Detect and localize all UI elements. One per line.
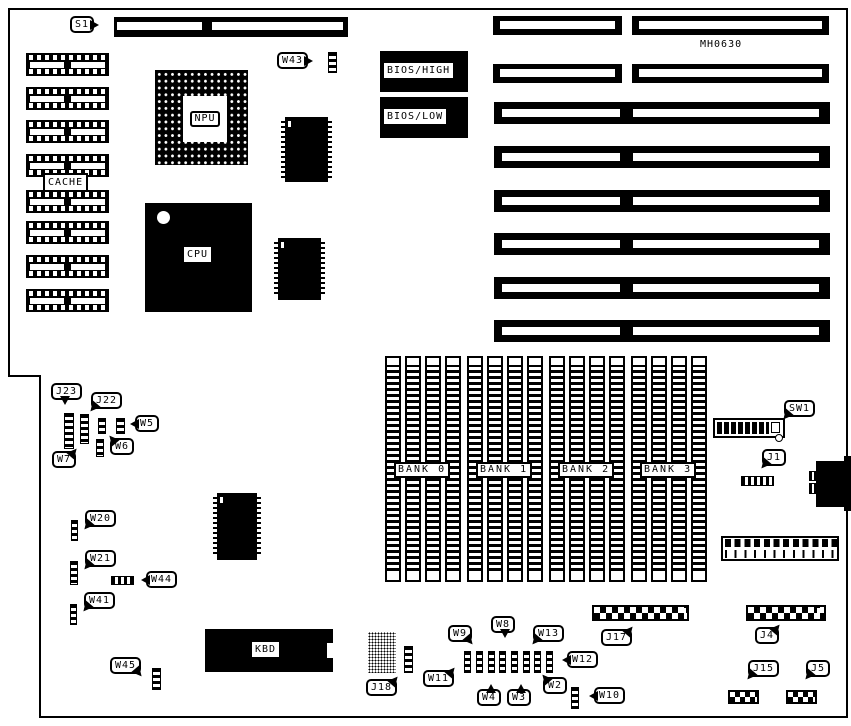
jumper-w21 bbox=[70, 561, 78, 585]
motherboard-diagram: S1 CACHE NPU CPU W43 BIOS/HIGH BIOS/LOW … bbox=[0, 0, 851, 726]
board-edge-left-upper bbox=[8, 8, 10, 377]
switch-cell bbox=[771, 422, 780, 433]
callout-j15: J15 bbox=[748, 660, 779, 677]
callout-w4-text: W4 bbox=[482, 692, 496, 703]
bank3-label: BANK 3 bbox=[640, 462, 696, 478]
pin-header-j15 bbox=[728, 690, 759, 704]
ic-chip-stippled bbox=[368, 632, 396, 673]
callout-w44-text: W44 bbox=[151, 574, 172, 585]
callout-w5: W5 bbox=[135, 415, 159, 432]
callout-w41-text: W41 bbox=[89, 595, 110, 606]
cache-socket-5 bbox=[26, 190, 109, 213]
isa-slot-8 bbox=[494, 320, 830, 342]
callout-w12-text: W12 bbox=[572, 654, 593, 665]
isa-slot-3 bbox=[494, 102, 830, 124]
callout-j18-text: J18 bbox=[371, 682, 392, 693]
callout-w20-text: W20 bbox=[90, 513, 111, 524]
jumper-w4 bbox=[488, 651, 495, 673]
isa-slot-1b bbox=[632, 16, 829, 35]
jumper-j18 bbox=[404, 646, 413, 673]
isa-slot-5 bbox=[494, 190, 830, 212]
cache-socket-3 bbox=[26, 120, 109, 143]
callout-w21: W21 bbox=[85, 550, 116, 567]
arrow-icon bbox=[500, 629, 510, 643]
jumper-w7 bbox=[96, 439, 104, 457]
callout-w2-text: W2 bbox=[548, 680, 562, 691]
cache-socket-7 bbox=[26, 255, 109, 278]
cache-socket-6 bbox=[26, 221, 109, 244]
simm-bank-1: BANK 1 bbox=[467, 356, 543, 582]
callout-w10-text: W10 bbox=[599, 690, 620, 701]
pin-header-j5 bbox=[786, 690, 817, 704]
bank1-label: BANK 1 bbox=[476, 462, 532, 478]
arrow-icon bbox=[486, 679, 496, 693]
simm-bank-0: BANK 0 bbox=[385, 356, 461, 582]
kbd-label: KBD bbox=[252, 642, 279, 657]
jumper-w43 bbox=[328, 52, 337, 73]
cache-socket-1 bbox=[26, 53, 109, 76]
callout-w7: W7 bbox=[52, 451, 76, 468]
npu-socket-center: NPU bbox=[183, 96, 227, 142]
callout-w2: W2 bbox=[543, 677, 567, 694]
jumper-w9 bbox=[476, 651, 483, 673]
isa-slot-2a bbox=[493, 64, 622, 83]
dip-switch-sw1 bbox=[713, 418, 785, 438]
callout-w43-text: W43 bbox=[282, 55, 303, 66]
npu-socket: NPU bbox=[155, 70, 248, 165]
ic-chip-lower bbox=[278, 238, 321, 300]
bank0-label: BANK 0 bbox=[394, 462, 450, 478]
ic-chip-upper bbox=[285, 117, 328, 182]
callout-w10: W10 bbox=[594, 687, 625, 704]
npu-label: NPU bbox=[190, 111, 219, 127]
callout-w11: W11 bbox=[423, 670, 454, 687]
part-number: MH0630 bbox=[700, 39, 742, 50]
cache-socket-2 bbox=[26, 87, 109, 110]
kbd-notch bbox=[327, 643, 335, 658]
arrow-icon bbox=[462, 634, 479, 652]
arrow-icon bbox=[125, 419, 139, 429]
power-connector bbox=[721, 536, 839, 561]
jumper-w13 bbox=[523, 651, 530, 673]
board-edge-step bbox=[8, 375, 41, 377]
callout-sw1: SW1 bbox=[784, 400, 815, 417]
jumper-w8 bbox=[499, 651, 506, 673]
callout-j23: J23 bbox=[51, 383, 82, 400]
isa-slot-1a bbox=[493, 16, 622, 35]
arrow-icon bbox=[90, 20, 104, 30]
jumper-w45 bbox=[152, 668, 161, 690]
isa-slot-4 bbox=[494, 146, 830, 168]
slot-s1 bbox=[114, 17, 348, 37]
callout-j22-text: J22 bbox=[96, 395, 117, 406]
callout-j4: J4 bbox=[755, 627, 779, 644]
arrow-icon bbox=[584, 691, 598, 701]
isa-slot-6 bbox=[494, 233, 830, 255]
ic-chip-middle bbox=[217, 493, 257, 560]
callout-w45: W45 bbox=[110, 657, 141, 674]
callout-w43: W43 bbox=[277, 52, 308, 69]
callout-w8: W8 bbox=[491, 616, 515, 633]
cpu-label: CPU bbox=[184, 247, 211, 262]
callout-j17-text: J17 bbox=[606, 632, 627, 643]
callout-w13: W13 bbox=[533, 625, 564, 642]
jumper-w12 bbox=[546, 651, 553, 673]
callout-w9: W9 bbox=[448, 625, 472, 642]
switch-dot bbox=[775, 434, 783, 442]
arrow-icon bbox=[131, 666, 148, 684]
board-edge-right bbox=[846, 8, 848, 718]
callout-w44: W44 bbox=[146, 571, 177, 588]
bios-high-rom: BIOS/HIGH bbox=[380, 51, 468, 92]
arrow-icon bbox=[557, 655, 571, 665]
header-key-cell bbox=[817, 608, 823, 613]
simm-bank-2: BANK 2 bbox=[549, 356, 625, 582]
callout-j5: J5 bbox=[806, 660, 830, 677]
pin-header-j4 bbox=[746, 605, 826, 621]
callout-w21-text: W21 bbox=[90, 553, 111, 564]
cpu-chip: CPU bbox=[145, 203, 252, 312]
jumper-w10 bbox=[571, 687, 579, 709]
jumper-w41 bbox=[70, 604, 77, 625]
callout-j1: J1 bbox=[762, 449, 786, 466]
callout-w3-text: W3 bbox=[512, 692, 526, 703]
callout-j15-text: J15 bbox=[753, 663, 774, 674]
callout-w12: W12 bbox=[567, 651, 598, 668]
callout-w11-text: W11 bbox=[428, 673, 449, 684]
bios-low-label: BIOS/LOW bbox=[384, 109, 446, 124]
callout-j18: J18 bbox=[366, 679, 397, 696]
jumper-w44 bbox=[111, 576, 134, 585]
board-edge-left-lower bbox=[39, 375, 41, 718]
callout-w20: W20 bbox=[85, 510, 116, 527]
callout-w6: W6 bbox=[110, 438, 134, 455]
arrow-icon bbox=[136, 575, 150, 585]
kbd-rom: KBD bbox=[205, 629, 333, 672]
callout-j17: J17 bbox=[601, 629, 632, 646]
callout-s1-text: S1 bbox=[75, 19, 89, 30]
callout-w6-text: W6 bbox=[115, 441, 129, 452]
callout-w4: W4 bbox=[477, 689, 501, 706]
pin-header-j17 bbox=[592, 605, 689, 621]
callout-w3: W3 bbox=[507, 689, 531, 706]
callout-w5-text: W5 bbox=[140, 418, 154, 429]
jumper-w11 bbox=[464, 651, 471, 673]
jumper-w5 bbox=[116, 418, 125, 434]
simm-bank-3: BANK 3 bbox=[631, 356, 707, 582]
callout-w41: W41 bbox=[84, 592, 115, 609]
bios-high-label: BIOS/HIGH bbox=[384, 63, 453, 78]
din-pin bbox=[809, 471, 817, 481]
arrow-icon bbox=[60, 396, 70, 410]
keyboard-din-tab bbox=[844, 456, 851, 511]
header-key-cell bbox=[680, 608, 686, 613]
isa-slot-2b bbox=[632, 64, 829, 83]
cache-label: CACHE bbox=[43, 173, 88, 192]
callout-j22: J22 bbox=[91, 392, 122, 409]
callout-sw1-text: SW1 bbox=[789, 403, 810, 414]
board-edge-bottom bbox=[39, 716, 848, 718]
isa-slot-7 bbox=[494, 277, 830, 299]
din-pin bbox=[809, 483, 817, 494]
board-edge-top bbox=[8, 8, 848, 10]
bios-low-rom: BIOS/LOW bbox=[380, 97, 468, 138]
callout-s1: S1 bbox=[70, 16, 94, 33]
bank2-label: BANK 2 bbox=[558, 462, 614, 478]
cache-socket-8 bbox=[26, 289, 109, 312]
jumper-j22 bbox=[80, 414, 89, 444]
arrow-icon bbox=[304, 56, 318, 66]
arrow-icon bbox=[516, 679, 526, 693]
jumper-w3 bbox=[511, 651, 518, 673]
callout-w13-text: W13 bbox=[538, 628, 559, 639]
connector-j1 bbox=[741, 476, 774, 486]
keyboard-din-connector bbox=[816, 461, 846, 507]
